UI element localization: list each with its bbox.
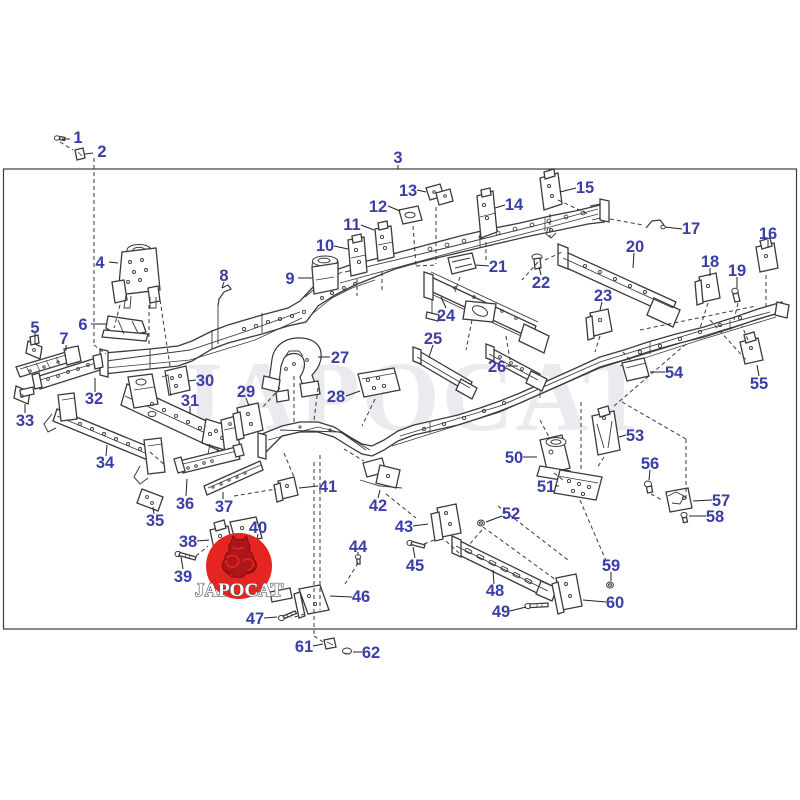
svg-text:19: 19: [728, 262, 746, 280]
svg-text:26: 26: [488, 358, 506, 376]
svg-text:3: 3: [393, 149, 402, 167]
svg-text:43: 43: [395, 518, 413, 536]
svg-text:47: 47: [246, 610, 264, 628]
svg-text:30: 30: [196, 372, 214, 390]
svg-text:52: 52: [502, 505, 520, 523]
svg-text:24: 24: [437, 307, 456, 325]
svg-text:40: 40: [249, 519, 267, 537]
svg-text:JAPOCAT: JAPOCAT: [195, 580, 284, 601]
svg-text:38: 38: [179, 533, 197, 551]
svg-text:37: 37: [215, 498, 233, 516]
svg-text:14: 14: [505, 196, 524, 214]
svg-text:53: 53: [626, 427, 644, 445]
svg-text:11: 11: [343, 216, 360, 234]
svg-text:61: 61: [295, 638, 313, 656]
svg-text:12: 12: [369, 198, 387, 216]
svg-text:50: 50: [505, 449, 523, 467]
svg-text:10: 10: [316, 237, 334, 255]
svg-text:62: 62: [362, 644, 380, 662]
svg-text:54: 54: [665, 364, 684, 382]
svg-text:20: 20: [626, 238, 644, 256]
svg-text:34: 34: [96, 454, 115, 472]
svg-text:28: 28: [327, 388, 345, 406]
svg-text:5: 5: [30, 319, 39, 337]
svg-text:39: 39: [174, 568, 192, 586]
svg-text:7: 7: [59, 330, 68, 348]
svg-text:4: 4: [95, 254, 105, 272]
svg-text:58: 58: [706, 508, 724, 526]
svg-text:17: 17: [682, 220, 700, 238]
svg-text:29: 29: [237, 383, 255, 401]
svg-text:25: 25: [424, 330, 442, 348]
svg-text:56: 56: [641, 455, 659, 473]
svg-text:42: 42: [369, 497, 387, 515]
svg-text:8: 8: [219, 267, 228, 285]
svg-text:13: 13: [399, 182, 417, 200]
svg-text:44: 44: [349, 538, 368, 556]
svg-text:45: 45: [406, 557, 424, 575]
svg-text:15: 15: [576, 179, 594, 197]
svg-text:2: 2: [97, 143, 106, 161]
svg-text:32: 32: [85, 390, 103, 408]
svg-text:23: 23: [594, 287, 612, 305]
svg-text:9: 9: [285, 270, 294, 288]
svg-text:55: 55: [750, 375, 768, 393]
svg-text:6: 6: [78, 316, 87, 334]
svg-text:1: 1: [73, 129, 82, 147]
svg-text:22: 22: [532, 274, 550, 292]
svg-text:49: 49: [492, 603, 510, 621]
svg-text:31: 31: [181, 392, 199, 410]
svg-text:36: 36: [176, 495, 194, 513]
svg-text:59: 59: [602, 557, 620, 575]
svg-text:18: 18: [701, 253, 719, 271]
svg-text:48: 48: [486, 582, 504, 600]
svg-text:46: 46: [352, 588, 370, 606]
svg-text:27: 27: [331, 349, 349, 367]
svg-text:60: 60: [606, 594, 624, 612]
svg-text:16: 16: [759, 225, 777, 243]
svg-text:21: 21: [489, 258, 507, 276]
svg-text:41: 41: [319, 478, 337, 496]
svg-text:33: 33: [16, 412, 34, 430]
svg-text:51: 51: [537, 478, 555, 496]
svg-text:35: 35: [146, 512, 164, 530]
